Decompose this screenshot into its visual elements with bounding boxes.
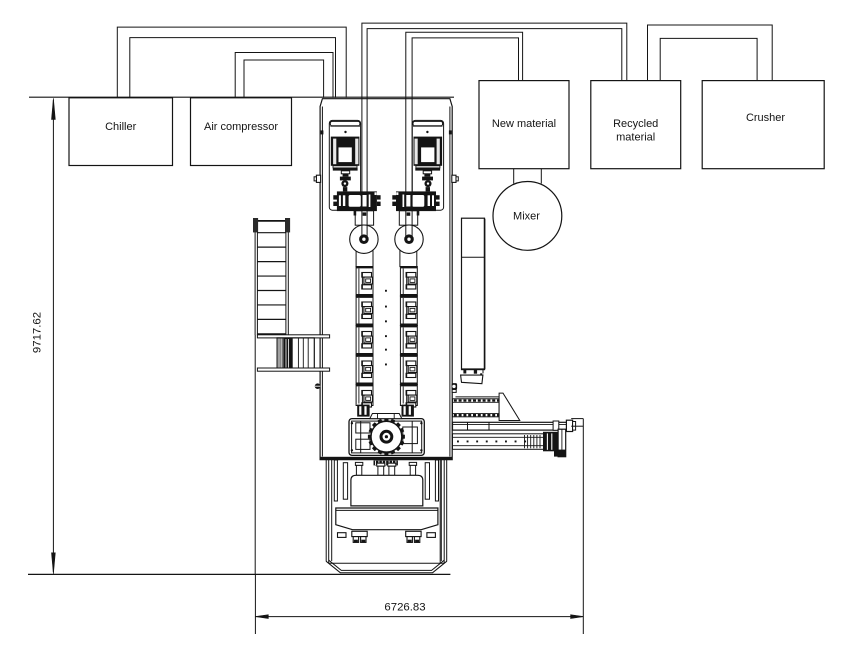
- svg-text:Chiller: Chiller: [105, 121, 137, 133]
- svg-text:New material: New material: [492, 118, 556, 130]
- svg-text:9717.62: 9717.62: [32, 312, 44, 353]
- svg-text:Crusher: Crusher: [746, 112, 785, 124]
- svg-text:material: material: [616, 132, 655, 144]
- svg-text:Recycled: Recycled: [613, 118, 658, 130]
- svg-text:Mixer: Mixer: [513, 211, 540, 223]
- svg-text:6726.83: 6726.83: [384, 602, 425, 614]
- svg-text:Air compressor: Air compressor: [204, 121, 278, 133]
